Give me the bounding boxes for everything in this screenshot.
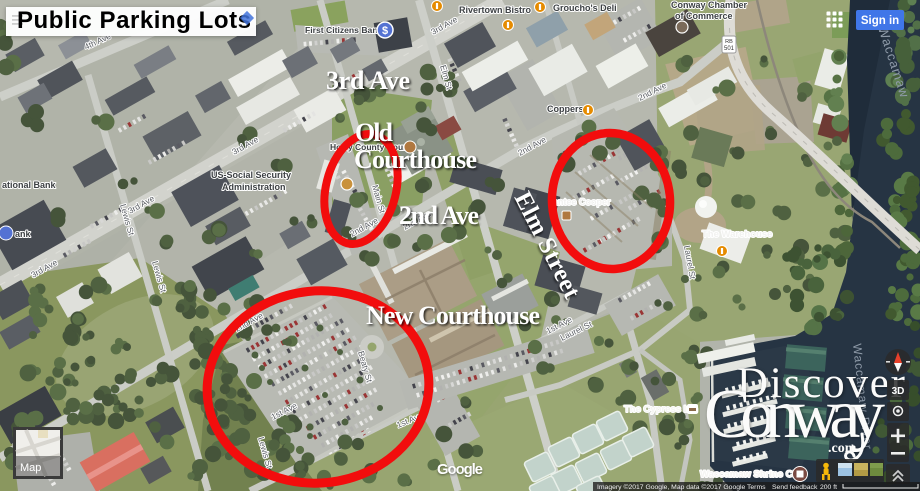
svg-text:The Warehouse: The Warehouse <box>702 229 772 240</box>
svg-text:US-Social Security: US-Social Security <box>211 170 291 180</box>
svg-text:$: $ <box>382 25 388 37</box>
svg-text:Public Parking Lots: Public Parking Lots <box>17 7 251 34</box>
svg-text:of Commerce: of Commerce <box>675 11 733 21</box>
svg-text:Google: Google <box>437 461 483 478</box>
svg-text:Groucho's Deli: Groucho's Deli <box>553 3 617 13</box>
svg-text:First Citizens Bank: First Citizens Bank <box>305 25 383 35</box>
svg-text:200 ft: 200 ft <box>820 484 837 491</box>
svg-text:RB: RB <box>725 39 733 45</box>
svg-text:antee Cooper: antee Cooper <box>553 197 611 207</box>
svg-text:2nd Ave: 2nd Ave <box>399 201 479 230</box>
svg-text:Courthouse: Courthouse <box>354 145 477 174</box>
svg-text:Rivertown Bistro: Rivertown Bistro <box>459 5 532 15</box>
svg-text:ational Bank: ational Bank <box>2 180 57 190</box>
svg-text:Sign in: Sign in <box>861 15 899 27</box>
svg-text:Imagery ©2017 Google, Map data: Imagery ©2017 Google, Map data ©2017 Goo… <box>597 483 746 491</box>
svg-text:Map: Map <box>20 462 41 474</box>
svg-text:Coppers: Coppers <box>547 104 584 114</box>
svg-text:Terms: Terms <box>747 484 766 491</box>
svg-text:3rd Ave: 3rd Ave <box>326 66 410 95</box>
svg-text:Administration: Administration <box>222 182 286 192</box>
svg-text:Old: Old <box>355 118 394 147</box>
svg-text:The Cypress Inn: The Cypress Inn <box>624 404 698 415</box>
svg-text:ank: ank <box>15 229 32 239</box>
svg-text:New Courthouse: New Courthouse <box>366 301 540 330</box>
svg-text:Send feedback: Send feedback <box>772 484 818 491</box>
svg-text:3D: 3D <box>892 386 905 397</box>
svg-text:Conway: Conway <box>704 376 885 453</box>
svg-text:Waccamaw Shrine Club: Waccamaw Shrine Club <box>700 469 807 480</box>
svg-text:Conway Chamber: Conway Chamber <box>671 0 748 10</box>
svg-text:501: 501 <box>724 46 735 52</box>
